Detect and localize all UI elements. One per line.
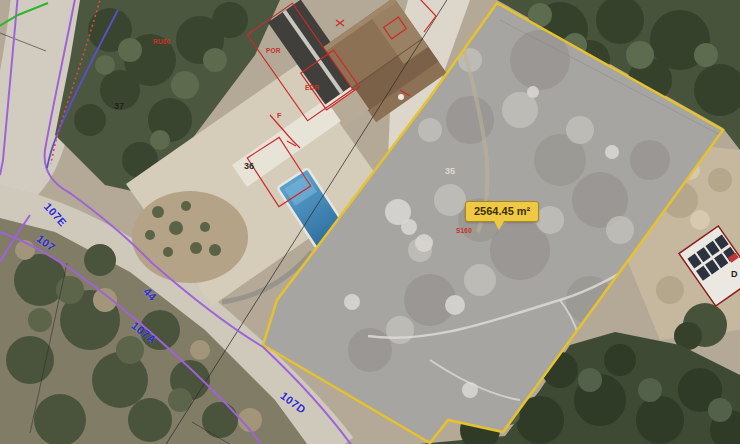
- aerial-map-canvas[interactable]: 107E 107 44 107A 107D 35 36 37 RU60 S160…: [0, 0, 740, 444]
- map-imagery: [0, 0, 740, 444]
- label-d: D: [731, 270, 738, 279]
- red-annotation-parcel: S160: [456, 228, 472, 235]
- building-chimney: [398, 94, 404, 100]
- red-code-edr: EDR: [305, 85, 319, 92]
- area-measurement-callout[interactable]: 2564.45 m²: [465, 201, 539, 222]
- plot-number-37: 37: [114, 102, 124, 111]
- plot-number-36: 36: [244, 162, 254, 171]
- area-value: 2564.45 m²: [474, 205, 530, 217]
- plot-number-35: 35: [445, 167, 455, 176]
- red-annotation-top: RU60: [153, 39, 170, 46]
- red-code-por: POR: [266, 48, 281, 55]
- callout-pointer: [494, 221, 504, 230]
- red-code-f: F: [277, 112, 282, 120]
